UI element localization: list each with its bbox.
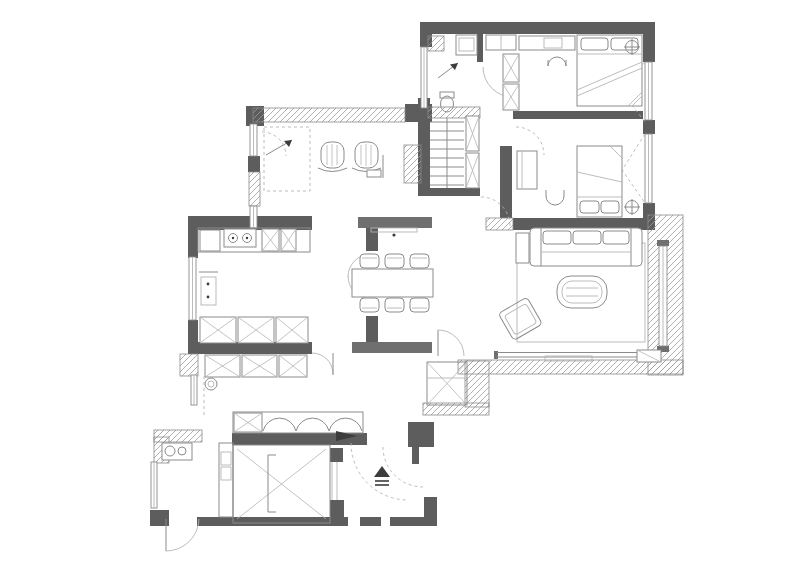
window-kitchen-left — [189, 257, 196, 320]
lounge-armchair — [498, 297, 542, 340]
room-second-bedroom — [516, 127, 640, 217]
elevator — [219, 443, 337, 523]
wall-study-left-pier — [248, 156, 260, 172]
armchair-icon — [352, 142, 381, 172]
dining-table — [352, 269, 433, 297]
window-corridor-left — [191, 375, 197, 405]
study-console — [358, 217, 432, 228]
stair-core — [430, 116, 510, 226]
dining-chairs-top — [360, 254, 429, 268]
wall-window-pier — [643, 120, 655, 134]
hatch-study-top — [253, 108, 405, 122]
pendant-lamp — [392, 233, 395, 236]
small-table — [201, 277, 216, 305]
ceiling-fan-icon — [624, 199, 640, 215]
utility-room — [162, 443, 199, 551]
side-table — [516, 233, 529, 263]
window-bedroom2-right — [645, 134, 652, 203]
desk — [517, 151, 537, 189]
wall-top — [420, 22, 653, 34]
wall-entry-right-block — [408, 422, 434, 447]
console-sideboard — [352, 342, 432, 353]
floor-plan-canvas — [0, 0, 800, 565]
side-table — [367, 170, 381, 177]
chair — [546, 190, 564, 205]
wall-topright-corner — [643, 22, 655, 62]
elevator-jamb-bottom — [330, 500, 344, 518]
dining-chairs-bottom — [360, 298, 429, 312]
room-kitchen — [198, 228, 371, 343]
armchair-icon — [318, 142, 347, 172]
wall-between-bedrooms — [513, 111, 643, 119]
window-study-left-lower — [250, 206, 257, 228]
elevator-jamb-top — [330, 448, 343, 462]
sofa-icon — [530, 228, 642, 266]
entry-marker-icon — [374, 466, 390, 485]
room-living — [498, 228, 661, 362]
closet-door-arc — [262, 132, 286, 156]
balcony-door-arc — [438, 330, 464, 356]
toilet-tank — [440, 92, 454, 98]
cooktop-icon — [224, 229, 256, 247]
bottom-door-gap-2 — [381, 516, 390, 527]
wall-lobby-right-lower — [424, 497, 437, 518]
utility-door-arc — [166, 519, 199, 551]
dresser-row — [205, 355, 307, 377]
room-master-bedroom — [503, 35, 642, 110]
hatch-utility-top — [154, 430, 202, 442]
wall-corridor-south — [188, 342, 312, 354]
window-living-right — [657, 240, 669, 352]
coffee-table-icon — [557, 276, 607, 308]
window-study-left-upper — [250, 124, 257, 156]
floor-plan-page — [0, 0, 800, 565]
desk-chair — [548, 57, 566, 66]
hatch-storage-right — [465, 361, 489, 407]
hanging-clothes-scallops — [263, 418, 362, 431]
wall-kitchen-left-upper — [188, 216, 198, 258]
hatch-living-north — [486, 218, 513, 230]
window-utility-left — [151, 462, 157, 508]
hatch-corridor-left — [180, 354, 198, 376]
hatch-study-left — [249, 172, 260, 206]
wall-bedroom2-left — [500, 146, 512, 218]
window-swing-dash-2 — [622, 134, 645, 203]
counter-box — [200, 230, 220, 251]
wall-below-stairs — [418, 188, 480, 196]
dining-area — [352, 254, 433, 312]
washing-machine — [205, 378, 217, 390]
pantry-closets — [200, 317, 308, 343]
hatch-bath-niche — [428, 36, 444, 51]
wall-bath-right — [477, 32, 483, 62]
window-living-bottom — [494, 351, 654, 359]
shower-arrow-head — [450, 63, 458, 70]
study-cabinet — [404, 145, 421, 183]
window-bath-left — [421, 47, 427, 108]
corridor-door-arc — [312, 353, 333, 374]
window-master-right — [645, 62, 652, 120]
elevator-car-bracket — [268, 455, 276, 512]
laundry-counter — [162, 443, 192, 460]
wall-lobby-right-upper — [412, 447, 419, 464]
single-bed-icon — [577, 146, 622, 217]
floor-mat — [264, 127, 310, 191]
stairs-icon — [430, 118, 464, 188]
wall-kitchen-jamb-lower — [366, 316, 378, 346]
bottom-door-gap-1 — [348, 516, 360, 527]
closet-corridor — [204, 353, 333, 416]
